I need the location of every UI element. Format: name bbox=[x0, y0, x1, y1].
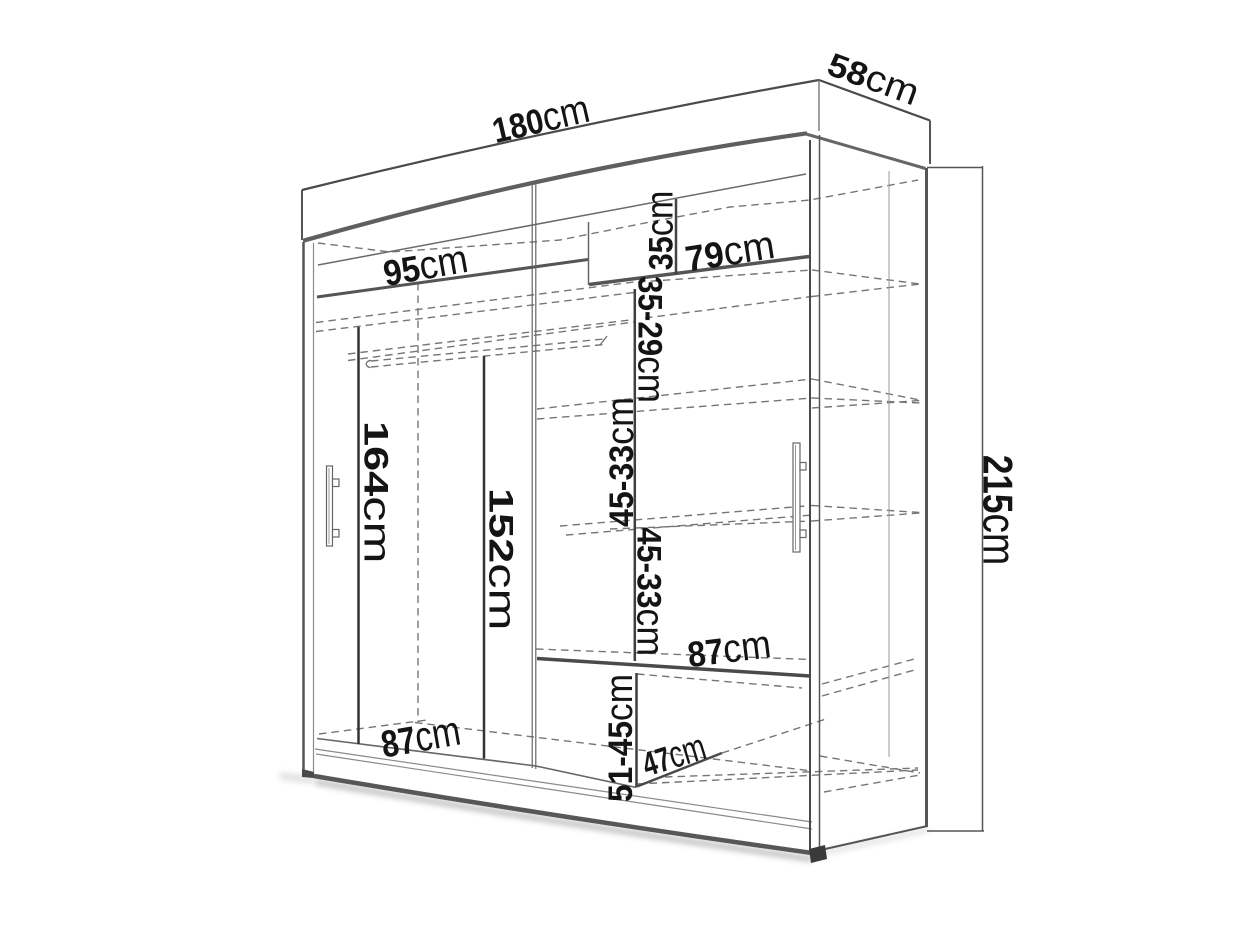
svg-text:95cm: 95cm bbox=[380, 236, 471, 295]
svg-text:35cm: 35cm bbox=[638, 191, 681, 271]
svg-text:215cm: 215cm bbox=[973, 455, 1025, 566]
svg-text:87cm: 87cm bbox=[377, 707, 464, 767]
svg-text:45-33cm: 45-33cm bbox=[599, 397, 641, 527]
svg-text:79cm: 79cm bbox=[682, 222, 778, 280]
svg-text:180cm: 180cm bbox=[487, 86, 593, 152]
svg-text:45-33cm: 45-33cm bbox=[629, 527, 671, 656]
svg-text:152cm: 152cm bbox=[481, 488, 523, 630]
svg-text:51-45cm: 51-45cm bbox=[598, 674, 640, 802]
svg-text:35-29cm: 35-29cm bbox=[630, 276, 673, 403]
svg-text:87cm: 87cm bbox=[685, 623, 773, 677]
svg-text:47cm: 47cm bbox=[637, 726, 711, 785]
svg-text:58cm: 58cm bbox=[822, 43, 924, 114]
svg-text:164cm: 164cm bbox=[356, 421, 398, 563]
